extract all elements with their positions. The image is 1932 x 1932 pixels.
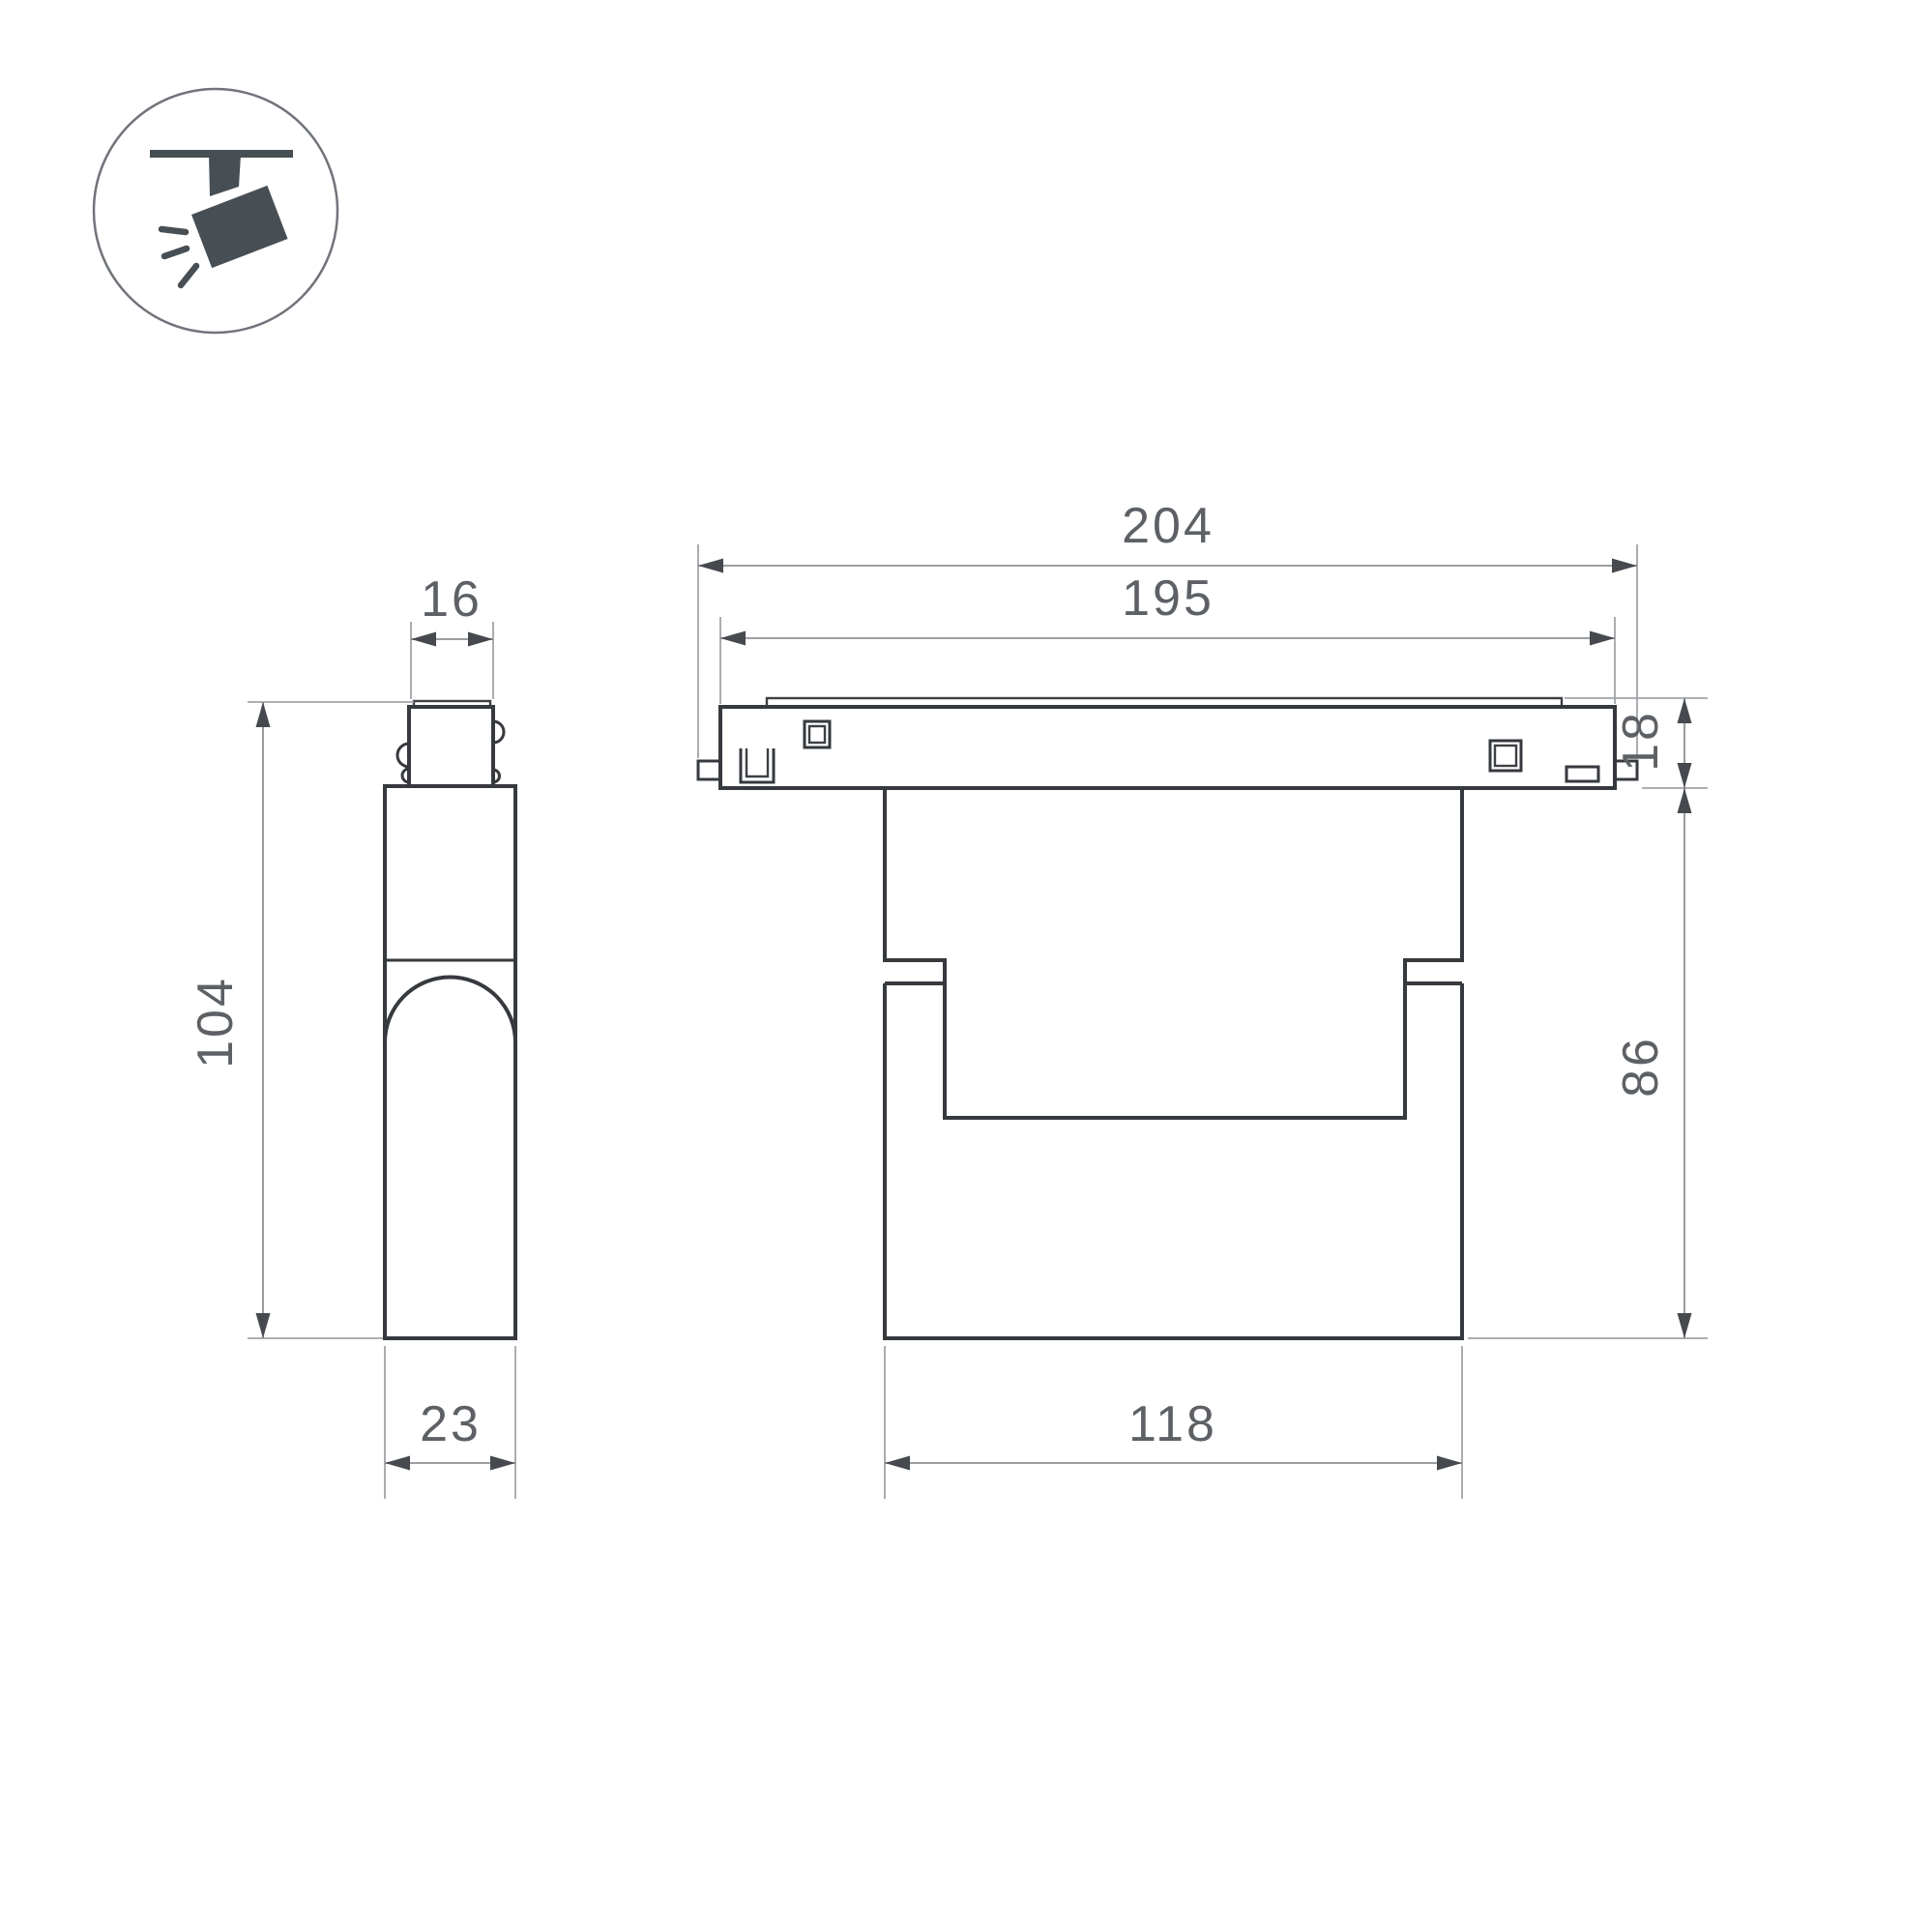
dim-label-195: 195 (1122, 571, 1215, 627)
side-body (385, 786, 515, 1338)
front-slot (1566, 767, 1598, 781)
dimensions: 16 104 23 204 (188, 498, 1708, 1499)
dim-total-width: 204 (698, 498, 1637, 758)
front-right-window-inner (1495, 746, 1516, 766)
dimension-drawing: 16 104 23 204 (0, 0, 1932, 1932)
side-lens-arch (385, 978, 515, 1043)
drawing-canvas: 16 104 23 204 (0, 0, 1932, 1932)
ceiling-track-spotlight-icon (94, 89, 337, 333)
dim-label-18: 18 (1613, 710, 1669, 772)
dim-label-104: 104 (188, 976, 244, 1068)
side-view (385, 701, 515, 1338)
dim-side-height: 104 (188, 702, 414, 1338)
dim-body-width: 118 (885, 1346, 1462, 1499)
front-left-pin (698, 761, 720, 779)
dim-label-23: 23 (420, 1396, 482, 1452)
front-u-clip-inner (746, 748, 768, 776)
dim-track-width: 195 (720, 571, 1615, 704)
side-adapter-clips (397, 721, 504, 782)
front-view (698, 698, 1637, 1338)
dim-label-16: 16 (421, 571, 483, 628)
dim-side-depth: 23 (385, 1346, 515, 1499)
front-left-window-inner (809, 726, 825, 743)
dim-label-204: 204 (1122, 498, 1215, 554)
dim-label-86: 86 (1613, 1036, 1669, 1098)
dim-side-top-width: 16 (411, 571, 493, 699)
side-adapter-box (409, 707, 493, 786)
dim-label-118: 118 (1128, 1396, 1217, 1452)
dim-body-height: 86 (1468, 788, 1708, 1338)
front-track-bar (720, 707, 1615, 788)
front-body-outline (885, 788, 1462, 1338)
